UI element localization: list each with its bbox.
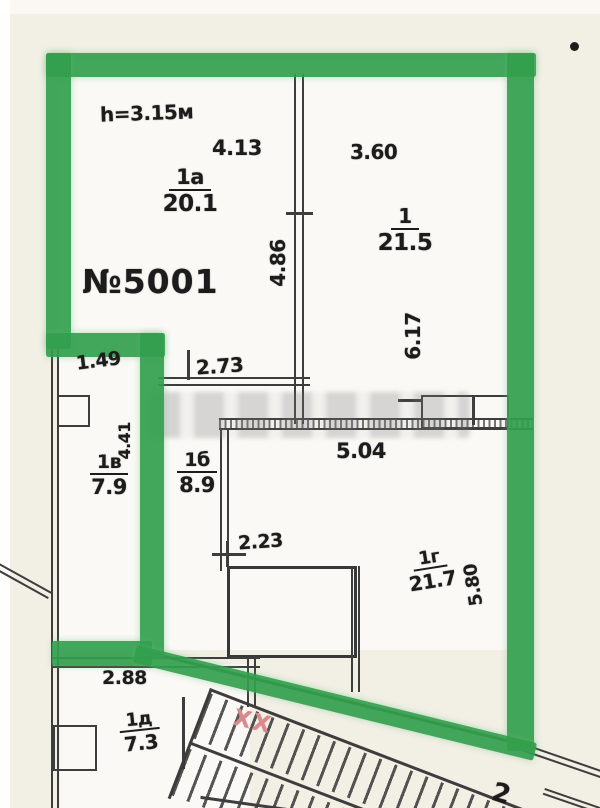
dim-2-88: 2.88 — [102, 668, 147, 689]
green-boundary-mid-vertical — [140, 333, 164, 659]
dim-2-23: 2.23 — [237, 530, 283, 554]
dim-4-86: 4.86 — [267, 228, 289, 298]
room-1b-number: 1б — [177, 450, 217, 473]
mid-shaft-box — [227, 566, 357, 658]
room-1-area: 21.5 — [378, 230, 433, 258]
wall-under-room-1a — [158, 377, 310, 386]
dim-4-13: 4.13 — [212, 137, 262, 160]
dim-6-17: 6.17 — [402, 301, 424, 371]
room-1d-label: 1д 7.3 — [110, 707, 170, 758]
scan-dot — [570, 42, 579, 51]
floorplan-canvas: h=3.15м 4.13 1а 20.1 №5001 4.86 3.60 1 2… — [0, 0, 600, 808]
green-boundary-left — [46, 53, 71, 349]
dim-3-60: 3.60 — [350, 141, 397, 163]
vent-shaft-divider — [472, 397, 475, 425]
room-1b-area: 8.9 — [179, 473, 215, 498]
dim-4-41: 4.41 — [116, 412, 134, 470]
scan-left-margin — [0, 0, 10, 808]
wall-tick-handle — [286, 212, 313, 215]
door-leaf-room-1a — [187, 350, 190, 380]
room-1a-number: 1а — [169, 166, 211, 191]
dim-2-73: 2.73 — [195, 353, 244, 378]
room-1v-area: 7.9 — [91, 475, 127, 500]
apartment-number-label: №5001 — [82, 264, 219, 300]
room-1-label: 1 21.5 — [372, 206, 438, 257]
landing-edge-2 — [543, 788, 600, 808]
room-1d-area: 7.3 — [123, 730, 159, 757]
room-1a-label: 1а 20.1 — [150, 166, 230, 218]
watermark — [150, 392, 470, 438]
wall-right-of-box — [351, 566, 360, 692]
left-wall-niche — [57, 395, 90, 427]
room-1b-label: 1б 8.9 — [168, 450, 226, 498]
room-1-number: 1 — [391, 206, 418, 230]
dim-tick-223-v — [226, 541, 229, 567]
dim-5-04: 5.04 — [336, 440, 386, 463]
room-1a-area: 20.1 — [163, 191, 218, 219]
left-door-box — [53, 725, 97, 771]
green-boundary-top — [46, 53, 536, 77]
scan-top-strip — [0, 0, 600, 14]
room-1g-label: 1г 21.7 — [397, 543, 465, 598]
green-boundary-right — [507, 53, 534, 751]
ceiling-height-label: h=3.15м — [100, 100, 194, 125]
